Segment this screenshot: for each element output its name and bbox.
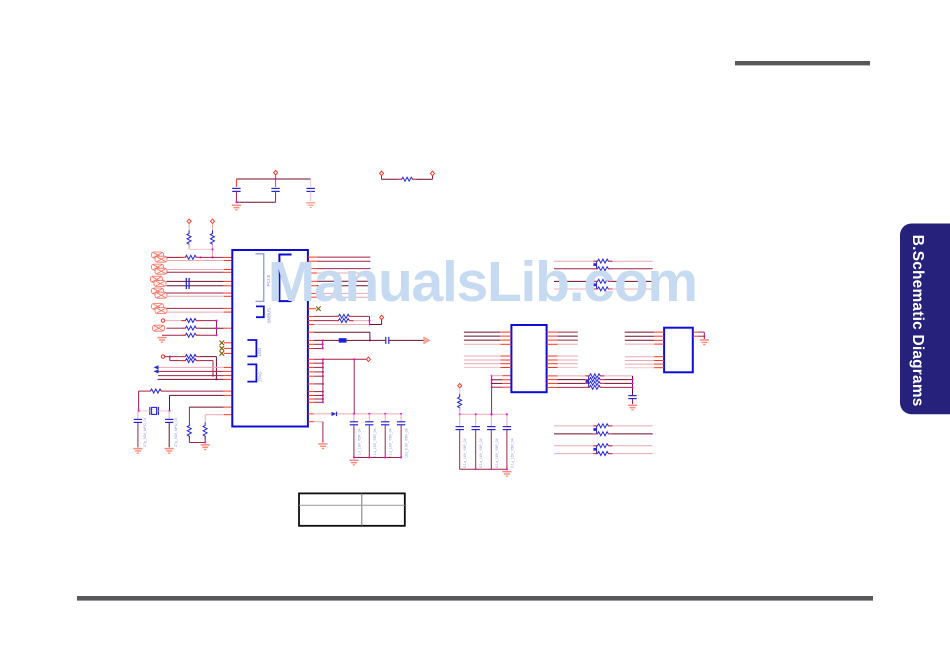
svg-text:27p_50V_NPO_04: 27p_50V_NPO_04 xyxy=(143,418,147,447)
svg-text:0.1u_16V_Y5R_04: 0.1u_16V_Y5R_04 xyxy=(495,438,499,468)
svg-text:0.1u_16V_Y5R_04: 0.1u_16V_Y5R_04 xyxy=(373,428,377,458)
svg-text:0.1u_16V_Y5R_04: 0.1u_16V_Y5R_04 xyxy=(510,438,514,468)
svg-text:B.Schematic Diagrams: B.Schematic Diagrams xyxy=(909,235,926,407)
svg-text:0.1u_16V_Y5R_04: 0.1u_16V_Y5R_04 xyxy=(479,438,483,468)
svg-text:27p_50V_NPO_04: 27p_50V_NPO_04 xyxy=(174,418,178,447)
svg-text:LED: LED xyxy=(257,348,262,357)
svg-text:10u_6.3V_X5R_08: 10u_6.3V_X5R_08 xyxy=(405,428,409,458)
svg-text:0.1u_16V_Y5R_04: 0.1u_16V_Y5R_04 xyxy=(357,428,361,458)
svg-text:0.1u_16V_Y5R_04: 0.1u_16V_Y5R_04 xyxy=(389,428,393,458)
svg-text:0.1u_16V_Y5R_04: 0.1u_16V_Y5R_04 xyxy=(463,438,467,468)
svg-text:JTAG: JTAG xyxy=(258,371,263,382)
svg-text:ManualsLib.com: ManualsLib.com xyxy=(268,250,697,314)
